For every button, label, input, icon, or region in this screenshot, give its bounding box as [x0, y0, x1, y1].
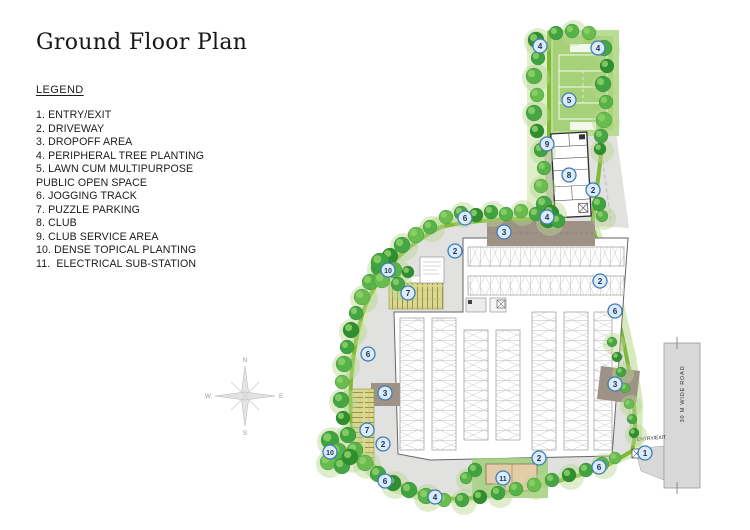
tree-icon [545, 473, 559, 487]
marker-1: 1 [638, 446, 652, 460]
marker-9: 9 [540, 137, 554, 151]
tree-icon [612, 352, 622, 362]
marker-6: 6 [608, 304, 622, 318]
marker-3: 3 [608, 377, 622, 391]
tree-icon [530, 88, 544, 102]
tree-icon [402, 266, 414, 278]
svg-text:3: 3 [502, 228, 507, 237]
tree-icon [627, 414, 637, 424]
marker-2: 2 [448, 244, 462, 258]
marker-6: 6 [378, 474, 392, 488]
tree-icon [594, 129, 608, 143]
svg-text:6: 6 [597, 463, 602, 472]
svg-text:7: 7 [406, 289, 411, 298]
marker-6: 6 [592, 460, 606, 474]
marker-7: 7 [401, 286, 415, 300]
svg-text:2: 2 [453, 247, 458, 256]
svg-text:2: 2 [598, 277, 603, 286]
marker-6: 6 [458, 211, 472, 225]
svg-text:8: 8 [567, 171, 572, 180]
svg-text:2: 2 [591, 186, 596, 195]
tree-icon [600, 59, 614, 73]
svg-text:3: 3 [613, 380, 618, 389]
tree-icon [549, 26, 563, 40]
svg-text:5: 5 [567, 96, 572, 105]
svg-text:4: 4 [538, 42, 543, 51]
tree-icon [526, 105, 542, 121]
marker-11: 11 [496, 471, 510, 485]
tree-icon [357, 455, 373, 471]
tree-icon [624, 399, 634, 409]
tree-icon [336, 356, 352, 372]
tree-icon [473, 490, 487, 504]
compass-s: S [243, 430, 248, 437]
svg-text:4: 4 [596, 44, 601, 53]
tree-icon [582, 26, 596, 40]
marker-4: 4 [540, 210, 554, 224]
tree-icon [491, 486, 505, 500]
tree-icon [499, 207, 513, 221]
tree-icon [439, 210, 453, 224]
svg-text:6: 6 [463, 214, 468, 223]
svg-text:2: 2 [537, 454, 542, 463]
site-plan: 30 M WIDE ROAD [0, 0, 750, 530]
marker-2: 2 [376, 437, 390, 451]
tree-icon [594, 143, 606, 155]
tree-icon [354, 289, 370, 305]
tree-icon [562, 468, 576, 482]
marker-4: 4 [591, 41, 605, 55]
tree-icon [340, 427, 356, 443]
road-label: 30 M WIDE ROAD [680, 366, 686, 423]
tree-icon [349, 306, 363, 320]
marker-8: 8 [562, 168, 576, 182]
tree-icon [342, 449, 358, 465]
svg-text:6: 6 [383, 477, 388, 486]
tree-icon [579, 463, 593, 477]
marker-5: 5 [562, 93, 576, 107]
tree-icon [394, 237, 410, 253]
tree-icon [423, 220, 437, 234]
tree-icon [333, 392, 349, 408]
tree-icon [599, 95, 613, 109]
tree-icon [336, 411, 350, 425]
tree-icon [484, 205, 498, 219]
marker-3: 3 [497, 225, 511, 239]
marker-2: 2 [586, 183, 600, 197]
svg-text:6: 6 [613, 307, 618, 316]
marker-4: 4 [428, 490, 442, 504]
svg-text:6: 6 [366, 350, 371, 359]
tree-icon [460, 472, 472, 484]
svg-text:2: 2 [381, 440, 386, 449]
marker-6: 6 [361, 347, 375, 361]
tree-icon [596, 210, 608, 222]
tree-icon [340, 340, 354, 354]
tree-icon [530, 124, 544, 138]
compass-e: E [279, 393, 284, 400]
compass-w: W [205, 393, 212, 400]
marker-4: 4 [533, 39, 547, 53]
tree-icon [534, 179, 548, 193]
tree-icon [629, 428, 639, 438]
svg-text:10: 10 [384, 268, 392, 275]
road: 30 M WIDE ROAD [635, 337, 700, 494]
tree-icon [537, 161, 551, 175]
tree-icon [335, 375, 349, 389]
tree-icon [609, 452, 621, 464]
svg-text:3: 3 [383, 389, 388, 398]
tree-icon [526, 68, 542, 84]
tree-icon [616, 367, 626, 377]
svg-text:7: 7 [365, 426, 370, 435]
tree-icon [408, 227, 424, 243]
tree-icon [455, 493, 469, 507]
tree-icon [401, 482, 417, 498]
marker-2: 2 [593, 274, 607, 288]
tree-icon [592, 197, 606, 211]
svg-text:11: 11 [499, 476, 507, 483]
svg-text:10: 10 [326, 450, 334, 457]
tree-icon [509, 482, 523, 496]
compass-n: N [243, 357, 248, 364]
marker-2: 2 [532, 451, 546, 465]
svg-text:4: 4 [433, 493, 438, 502]
tree-icon [596, 112, 612, 128]
tree-icon [595, 76, 611, 92]
tree-icon [514, 204, 528, 218]
svg-text:9: 9 [545, 140, 550, 149]
svg-text:4: 4 [545, 213, 550, 222]
slide: Ground Floor Plan LEGEND 1. ENTRY/EXIT2.… [0, 0, 750, 530]
marker-10: 10 [323, 445, 337, 459]
tree-icon [607, 337, 617, 347]
marker-10: 10 [381, 263, 395, 277]
tree-icon [527, 478, 541, 492]
marker-7: 7 [360, 423, 374, 437]
svg-text:1: 1 [643, 449, 648, 458]
tree-icon [565, 24, 579, 38]
marker-3: 3 [378, 386, 392, 400]
compass-rose: N S W E [205, 357, 284, 437]
tree-icon [343, 322, 359, 338]
